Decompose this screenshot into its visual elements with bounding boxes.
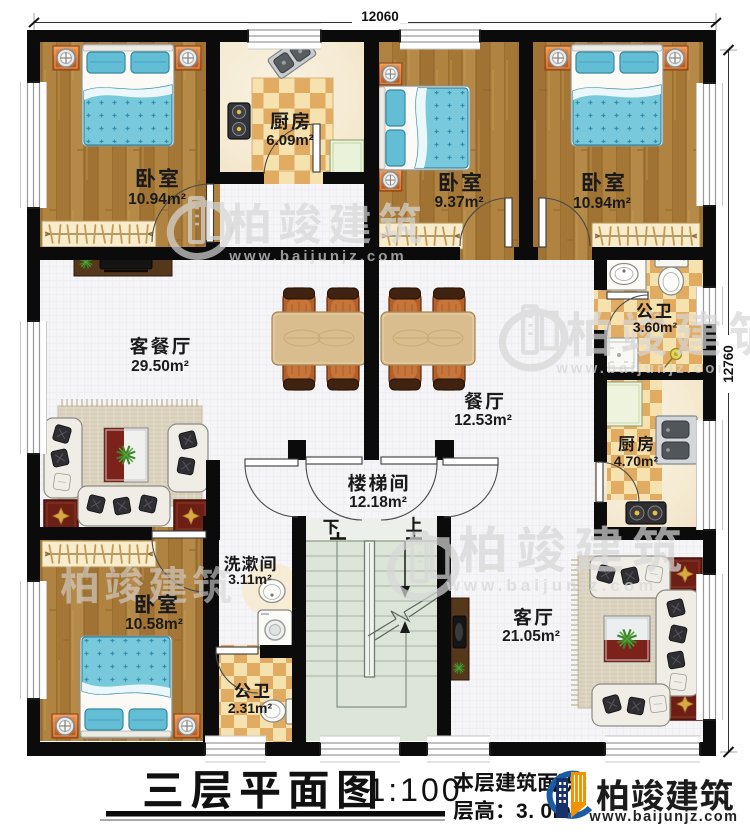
svg-text:www.baijunjz.com: www.baijunjz.com [555,360,733,377]
svg-text:10.94m²: 10.94m² [573,195,631,212]
svg-text:12.53m²: 12.53m² [454,412,512,429]
svg-text:9.37m²: 9.37m² [434,194,483,211]
svg-text:12.18m²: 12.18m² [349,494,407,511]
svg-text:www.baijunjz.com: www.baijunjz.com [588,809,738,825]
svg-text:12760: 12760 [721,345,736,383]
svg-text:3.60m²: 3.60m² [633,319,678,335]
svg-text:10.94m²: 10.94m² [128,191,186,208]
svg-text:www.baijunjz.com: www.baijunjz.com [446,576,658,595]
svg-text:.: . [528,800,534,823]
svg-text:2.31m²: 2.31m² [228,700,273,716]
svg-text:29.50m²: 29.50m² [131,358,189,375]
svg-text:3: 3 [516,800,528,823]
svg-text:10.58m²: 10.58m² [125,616,183,633]
svg-text:12060: 12060 [361,9,399,24]
svg-text:www.baijunjz.com: www.baijunjz.com [228,248,406,265]
svg-text:1:100: 1:100 [367,772,462,808]
svg-text:4.70m²: 4.70m² [614,453,659,469]
svg-text:6.09m²: 6.09m² [266,132,314,149]
svg-text:3.11m²: 3.11m² [228,571,272,587]
svg-text:21.05m²: 21.05m² [502,628,560,645]
